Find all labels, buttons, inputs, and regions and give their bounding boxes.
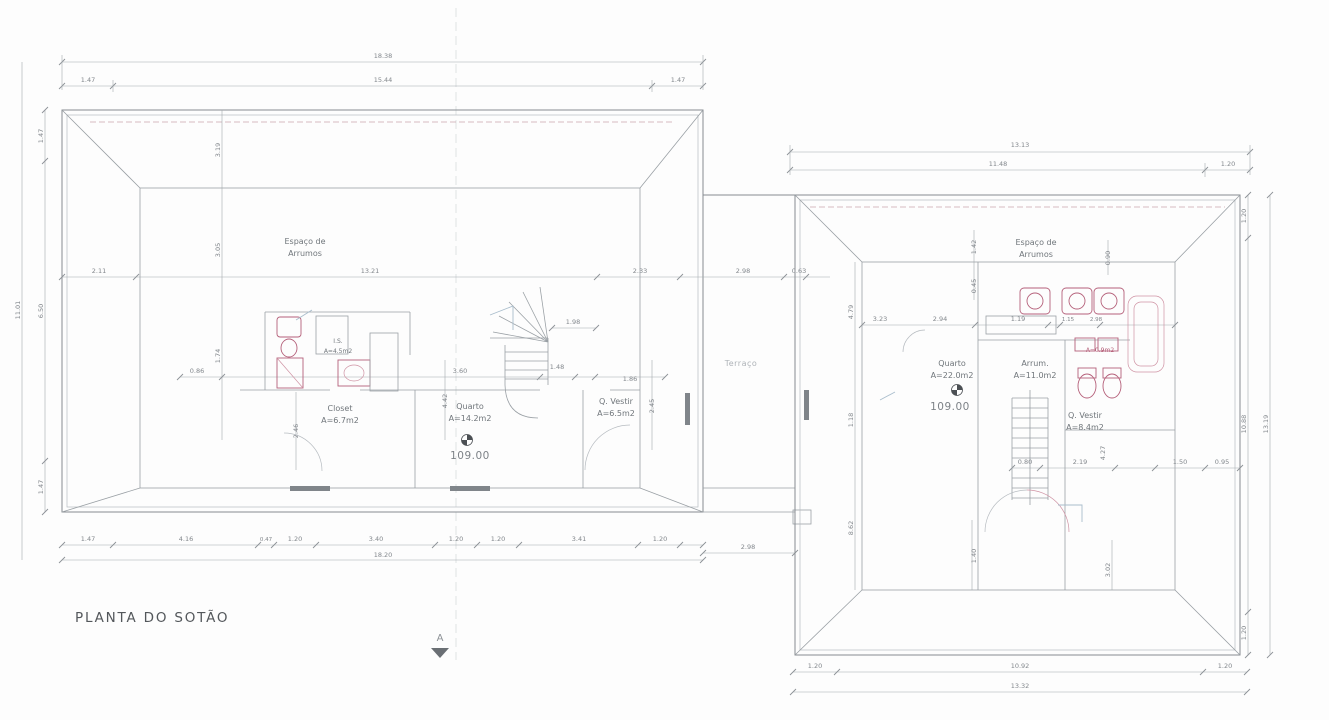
- dim-text: 1.40: [970, 549, 978, 563]
- dim-text: 13.21: [361, 267, 380, 275]
- dim-text: 4.42: [441, 394, 449, 408]
- dim-text: 1.19: [1011, 315, 1025, 323]
- dim-text: 1.20: [653, 535, 667, 543]
- dim-text: 13.13: [1011, 141, 1030, 149]
- dim-text: 1.15: [1062, 317, 1075, 323]
- dim-text: 3.60: [453, 367, 467, 375]
- dim-text: 2.94: [933, 315, 947, 323]
- dim-text: 1.20: [449, 535, 463, 543]
- dim-text: 6.50: [37, 304, 45, 318]
- level-value: 109.00: [930, 401, 970, 413]
- dim-text: 0.45: [970, 279, 978, 293]
- room-area-label: A=14.2m2: [449, 414, 492, 423]
- dim-text: 0.95: [1215, 458, 1229, 466]
- dim-text: 13.19: [1262, 415, 1270, 434]
- dim-text: 1.47: [671, 76, 685, 84]
- dim-text: 1.47: [37, 129, 45, 143]
- room-label: Q. Vestir: [1068, 411, 1103, 420]
- dim-text: 1.47: [81, 535, 95, 543]
- dim-text: 18.20: [374, 551, 393, 559]
- right-plan-door-arcs: [880, 330, 1082, 532]
- room-label: I.S.: [333, 338, 342, 345]
- right-plan-windows: [804, 390, 809, 420]
- dim-text: 1.20: [288, 535, 302, 543]
- right-plan-stair: [1012, 390, 1048, 505]
- dim-text: 1.20: [491, 535, 505, 543]
- terrace-label: Terraço: [724, 359, 758, 368]
- dim-text: 3.40: [369, 535, 383, 543]
- dim-text: 0.86: [190, 367, 204, 375]
- room-area-label: A=22.0m2: [931, 371, 974, 380]
- dim-text: 3.19: [214, 143, 222, 157]
- dim-text: 11.01: [14, 301, 22, 320]
- room-area-label: A=6.5m2: [597, 409, 635, 418]
- dim-text: 1.42: [970, 240, 978, 254]
- dim-text: 1.86: [623, 375, 637, 383]
- dim-text: 0.63: [792, 267, 806, 275]
- dim-text: 2.45: [648, 399, 656, 413]
- dim-text: 4.27: [1099, 446, 1107, 460]
- room-label: Arrum.: [1021, 359, 1048, 368]
- room-area-label: A=6.7m2: [321, 416, 359, 425]
- dim-text: 11.48: [989, 160, 1008, 168]
- dim-text: 1.20: [1218, 662, 1232, 670]
- section-marker-arrow: [431, 648, 449, 658]
- dim-text: 2.98: [736, 267, 750, 275]
- room-area-label: A=8.4m2: [1066, 423, 1104, 432]
- dim-text: 2.98: [1090, 317, 1103, 323]
- dim-text: 1.74: [214, 349, 222, 363]
- dim-text: 2.19: [1073, 458, 1087, 466]
- room-label: Arrumos: [288, 249, 322, 258]
- room-label: Q. Vestir: [599, 397, 634, 406]
- dim-text: 1.20: [1221, 160, 1235, 168]
- dim-text: 1.18: [847, 413, 855, 427]
- left-plan-door-arcs: [284, 306, 630, 471]
- room-label: Arrumos: [1019, 250, 1053, 259]
- dim-text: 2.98: [741, 543, 755, 551]
- dim-text: 3.02: [1104, 563, 1112, 577]
- dim-text: 1.50: [1173, 458, 1187, 466]
- dim-text: 10.88: [1240, 415, 1248, 434]
- right-plan-level-marker: [952, 385, 963, 396]
- dim-text: 3.23: [873, 315, 887, 323]
- drawing-title: PLANTA DO SOTÃO: [75, 609, 229, 626]
- dim-text: 8.62: [847, 521, 855, 535]
- level-value: 109.00: [450, 450, 490, 462]
- room-label: Espaço de: [284, 237, 325, 246]
- dim-text: 1.20: [1240, 626, 1248, 640]
- dim-text: 1.47: [37, 480, 45, 494]
- room-area-label: A=11.0m2: [1014, 371, 1057, 380]
- right-plan-walls: [795, 195, 1240, 655]
- dim-text: 0.90: [1104, 251, 1112, 265]
- right-plan-bathroom-fixtures: [1020, 288, 1164, 398]
- dim-text: 1.20: [1240, 209, 1248, 223]
- dim-text: 1.47: [81, 76, 95, 84]
- left-plan-level-marker: [462, 435, 473, 446]
- dim-text: 1.48: [550, 363, 564, 371]
- plan-drawing: 18.38 1.47 15.44 1.47 11.01 1.47 6.50 1.…: [0, 0, 1329, 720]
- dim-text: 1.20: [808, 662, 822, 670]
- dim-text: 18.38: [374, 52, 393, 60]
- floor-plan-sheet: 18.38 1.47 15.44 1.47 11.01 1.47 6.50 1.…: [0, 0, 1329, 720]
- dim-text: 4.79: [847, 305, 855, 319]
- room-label: Quarto: [456, 402, 484, 411]
- room-area-label: A=4.5m2: [324, 348, 353, 355]
- dim-text: 0.47: [260, 537, 273, 543]
- left-plan-winder-stair: [490, 287, 548, 418]
- dim-text: 13.32: [1011, 682, 1030, 690]
- room-label: Closet: [328, 404, 353, 413]
- room-label: Quarto: [938, 359, 966, 368]
- section-marker-label: A: [437, 633, 444, 644]
- dim-text: 2.11: [92, 267, 106, 275]
- left-plan-walls: [62, 110, 703, 512]
- dim-text: 15.44: [374, 76, 393, 84]
- dim-text: 4.16: [179, 535, 193, 543]
- dim-text: 10.92: [1011, 662, 1030, 670]
- room-label: Espaço de: [1015, 238, 1056, 247]
- left-plan-dimension-lines: [22, 55, 830, 563]
- dim-text: 3.41: [572, 535, 586, 543]
- dim-text: 3.05: [214, 243, 222, 257]
- fixture-area-label: A=0.9m2: [1086, 347, 1115, 354]
- dim-text: 1.98: [566, 318, 580, 326]
- dim-text: 2.33: [633, 267, 647, 275]
